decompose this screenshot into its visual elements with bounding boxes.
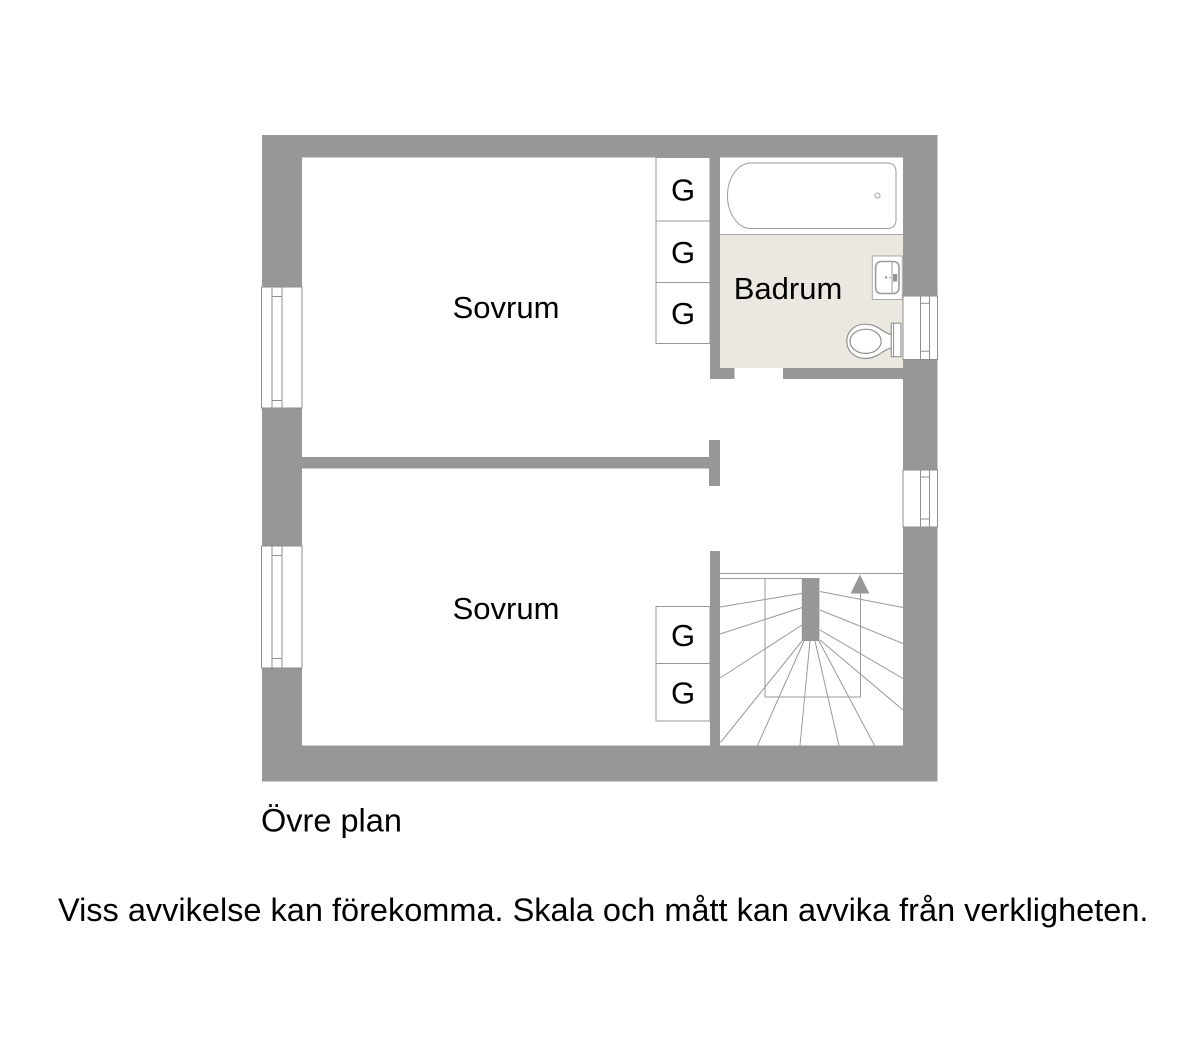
svg-text:G: G [671,173,695,208]
svg-text:Viss avvikelse kan förekomma.: Viss avvikelse kan förekomma. Skala och … [58,892,1148,928]
svg-text:G: G [671,618,695,653]
svg-text:Sovrum: Sovrum [453,290,560,325]
svg-text:Sovrum: Sovrum [453,591,560,626]
svg-text:Övre plan: Övre plan [261,803,402,839]
svg-text:G: G [671,296,695,331]
svg-text:G: G [671,235,695,270]
svg-text:G: G [671,676,695,711]
svg-text:Badrum: Badrum [734,271,843,306]
